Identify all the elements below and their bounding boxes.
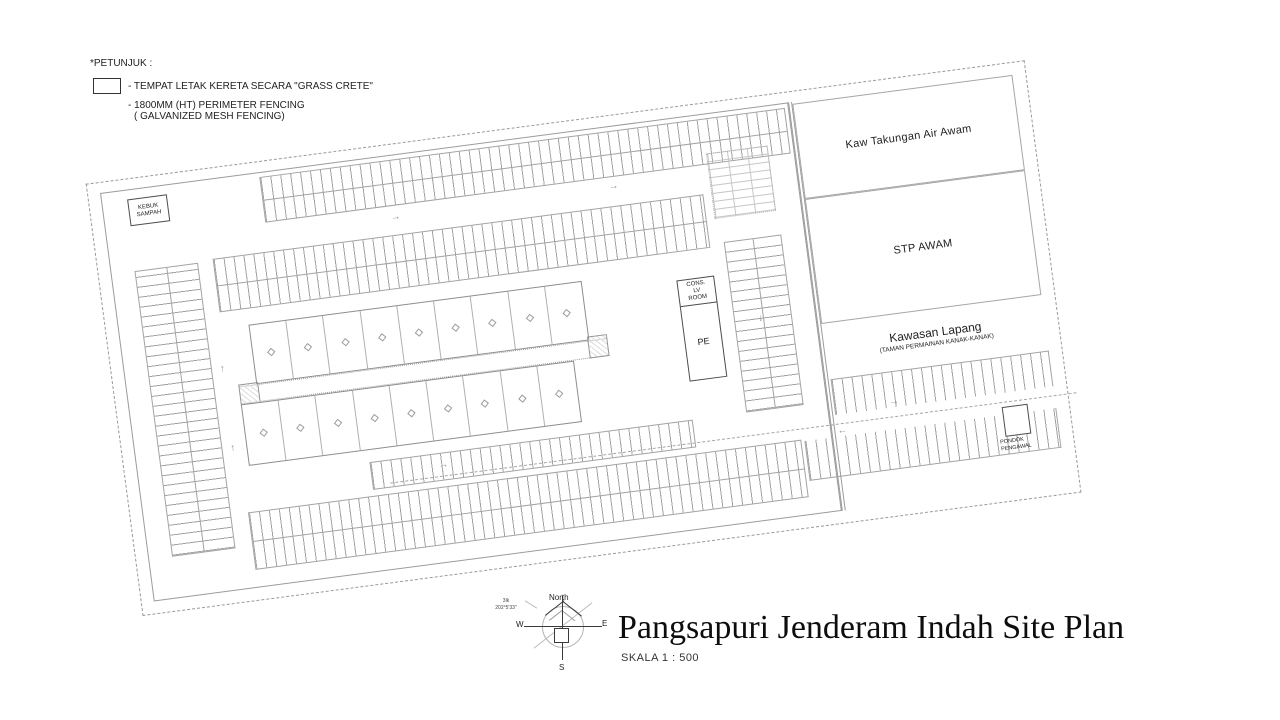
flow-arrow-right-icon: →: [608, 181, 619, 192]
bearing-annotation: 3lk 202°5'33": [486, 598, 526, 611]
legend-fencing-label-line2: ( GALVANIZED MESH FENCING): [134, 111, 285, 122]
apartment-unit: [536, 362, 581, 426]
grass-crete-symbol: [93, 78, 121, 94]
legend-fencing-label-line1: - 1800MM (HT) PERIMETER FENCING: [128, 100, 305, 111]
legend-grass-crete-label: - TEMPAT LETAK KERETA SECARA "GRASS CRET…: [128, 81, 373, 92]
pondok-pengawal-building: [1002, 404, 1032, 437]
stp-awam-label: STP AWAM: [893, 237, 954, 257]
compass-east-west-axis: [524, 626, 602, 627]
compass-north-label: North: [549, 593, 569, 602]
drawing-title: Pangsapuri Jenderam Indah Site Plan: [618, 609, 1178, 647]
compass-south-label: S: [559, 663, 564, 672]
site-plan-drawing: KEBUK SAMPAH: [100, 73, 1066, 602]
compass-east-label: E: [602, 619, 607, 628]
kaw-takungan-label: Kaw Takungan Air Awam: [845, 123, 972, 151]
flow-arrow-right-icon: →: [390, 212, 401, 223]
grass-crete-parking-block: [706, 145, 776, 219]
site-plan-document: *PETUNJUK : - TEMPAT LETAK KERETA SECARA…: [0, 0, 1280, 720]
kebuk-sampah-building: KEBUK SAMPAH: [127, 194, 170, 226]
fence-line-symbol: [64, 107, 124, 108]
legend-title: *PETUNJUK :: [90, 58, 152, 69]
flow-arrow-right-icon: →: [888, 397, 899, 408]
flow-arrow-left-icon: ←: [837, 426, 848, 437]
corridor-end-core-right: [587, 334, 610, 358]
apartment-unit: [544, 282, 588, 344]
bearing-line2: 202°5'33": [486, 605, 526, 612]
flow-arrow-right-icon: →: [438, 460, 449, 471]
compass-west-label: W: [516, 620, 524, 629]
drawing-scale: SKALA 1 : 500: [621, 652, 699, 664]
compass-center-square: [554, 628, 569, 643]
